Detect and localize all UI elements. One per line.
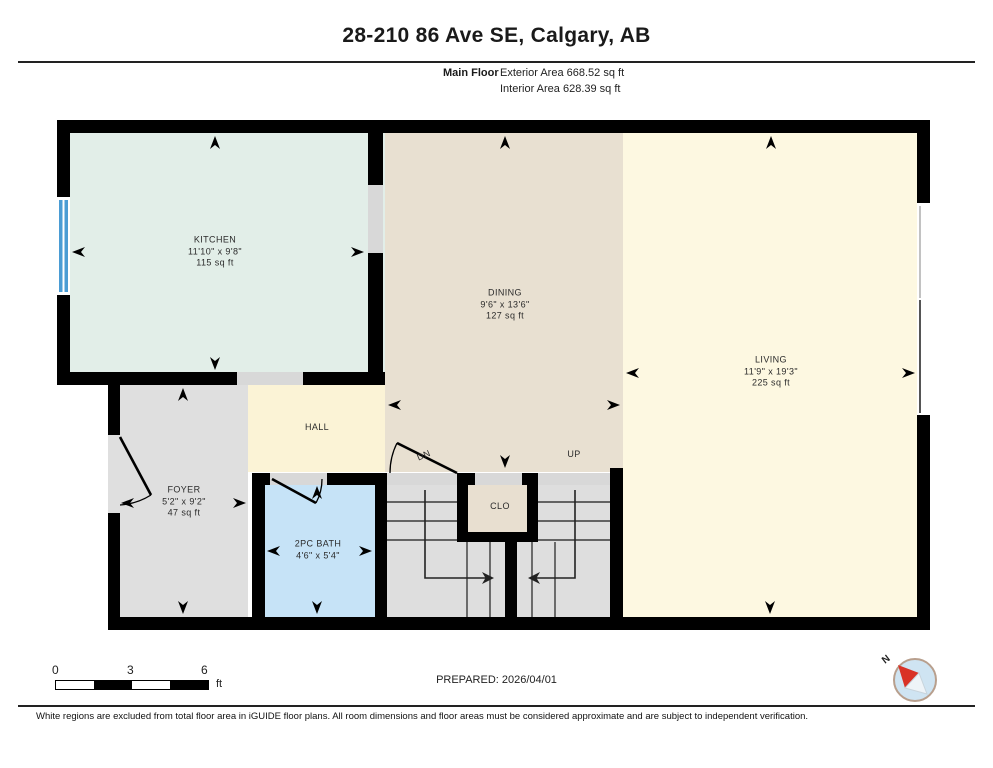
dining-name: DINING	[480, 287, 529, 299]
stair-up-label: UP	[567, 449, 580, 461]
wall-top	[57, 120, 930, 133]
disclaimer-text: White regions are excluded from total fl…	[36, 711, 966, 722]
living-area: 225 sq ft	[744, 378, 798, 390]
compass-north-label: N	[880, 653, 892, 666]
opening-stair-down	[387, 473, 457, 485]
opening-kitchen-dining	[368, 185, 383, 253]
wall-kitchen-dining-lower	[368, 253, 383, 372]
floorplan-drawing	[0, 0, 993, 768]
wall-left-upper	[57, 133, 70, 197]
wall-bottom	[108, 617, 930, 630]
bath-label: 2PC BATH 4'6" x 5'4"	[295, 538, 342, 561]
opening-stair-up	[538, 473, 610, 485]
living-window-sill	[919, 206, 921, 298]
living-label: LIVING 11'9" x 19'3" 225 sq ft	[744, 354, 798, 389]
wall-foyer-left-lower	[108, 513, 120, 630]
wall-kitchen-bottom-right	[303, 372, 385, 385]
foyer-label: FOYER 5'2" x 9'2" 47 sq ft	[162, 484, 206, 519]
stair-up-text: UP	[567, 449, 580, 461]
foyer-area: 47 sq ft	[162, 508, 206, 520]
living-window-glass-line	[919, 300, 921, 413]
wall-stair-living	[610, 468, 623, 630]
bath-dims: 4'6" x 5'4"	[295, 550, 342, 562]
wall-stair-divider	[505, 542, 517, 630]
closet-name: CLO	[490, 501, 510, 513]
foyer-dims: 5'2" x 9'2"	[162, 496, 206, 508]
kitchen-label: KITCHEN 11'10" x 9'8" 115 sq ft	[188, 234, 242, 269]
living-name: LIVING	[744, 354, 798, 366]
kitchen-area: 115 sq ft	[188, 258, 242, 270]
floorplan-page: 28-210 86 Ave SE, Calgary, AB Main Floor…	[0, 0, 993, 768]
opening-entry-door	[108, 435, 120, 513]
living-window	[917, 203, 930, 415]
wall-right-upper	[917, 133, 930, 203]
living-window-frame	[917, 203, 930, 415]
wall-closet-top-b	[522, 473, 538, 485]
wall-kitchen-bottom-left	[57, 372, 237, 385]
hall-name: HALL	[305, 422, 329, 434]
prepared-date: PREPARED: 2026/04/01	[0, 674, 993, 686]
foyer-name: FOYER	[162, 484, 206, 496]
compass-icon: N	[872, 646, 954, 710]
wall-bath-left	[252, 473, 265, 630]
dining-label: DINING 9'6" x 13'6" 127 sq ft	[480, 287, 529, 322]
kitchen-window-mullion	[63, 200, 65, 292]
wall-closet-bottom	[457, 532, 538, 542]
wall-bath-right	[375, 473, 387, 630]
closet-label: CLO	[490, 501, 510, 513]
dining-dims: 9'6" x 13'6"	[480, 299, 529, 311]
living-dims: 11'9" x 19'3"	[744, 366, 798, 378]
wall-kitchen-dining-upper	[368, 133, 383, 185]
wall-right-lower	[917, 415, 930, 617]
wall-closet-top-a	[457, 473, 475, 485]
dining-area: 127 sq ft	[480, 311, 529, 323]
footer-divider	[18, 705, 975, 707]
hall-label: HALL	[305, 422, 329, 434]
wall-bath-top-left	[252, 473, 270, 485]
kitchen-name: KITCHEN	[188, 234, 242, 246]
wall-foyer-left-upper	[108, 385, 120, 435]
kitchen-window	[57, 197, 70, 295]
kitchen-dims: 11'10" x 9'8"	[188, 246, 242, 258]
opening-kitchen-hall	[237, 372, 303, 385]
wall-left-lower	[57, 295, 70, 372]
bath-name: 2PC BATH	[295, 538, 342, 550]
opening-closet	[475, 473, 522, 485]
